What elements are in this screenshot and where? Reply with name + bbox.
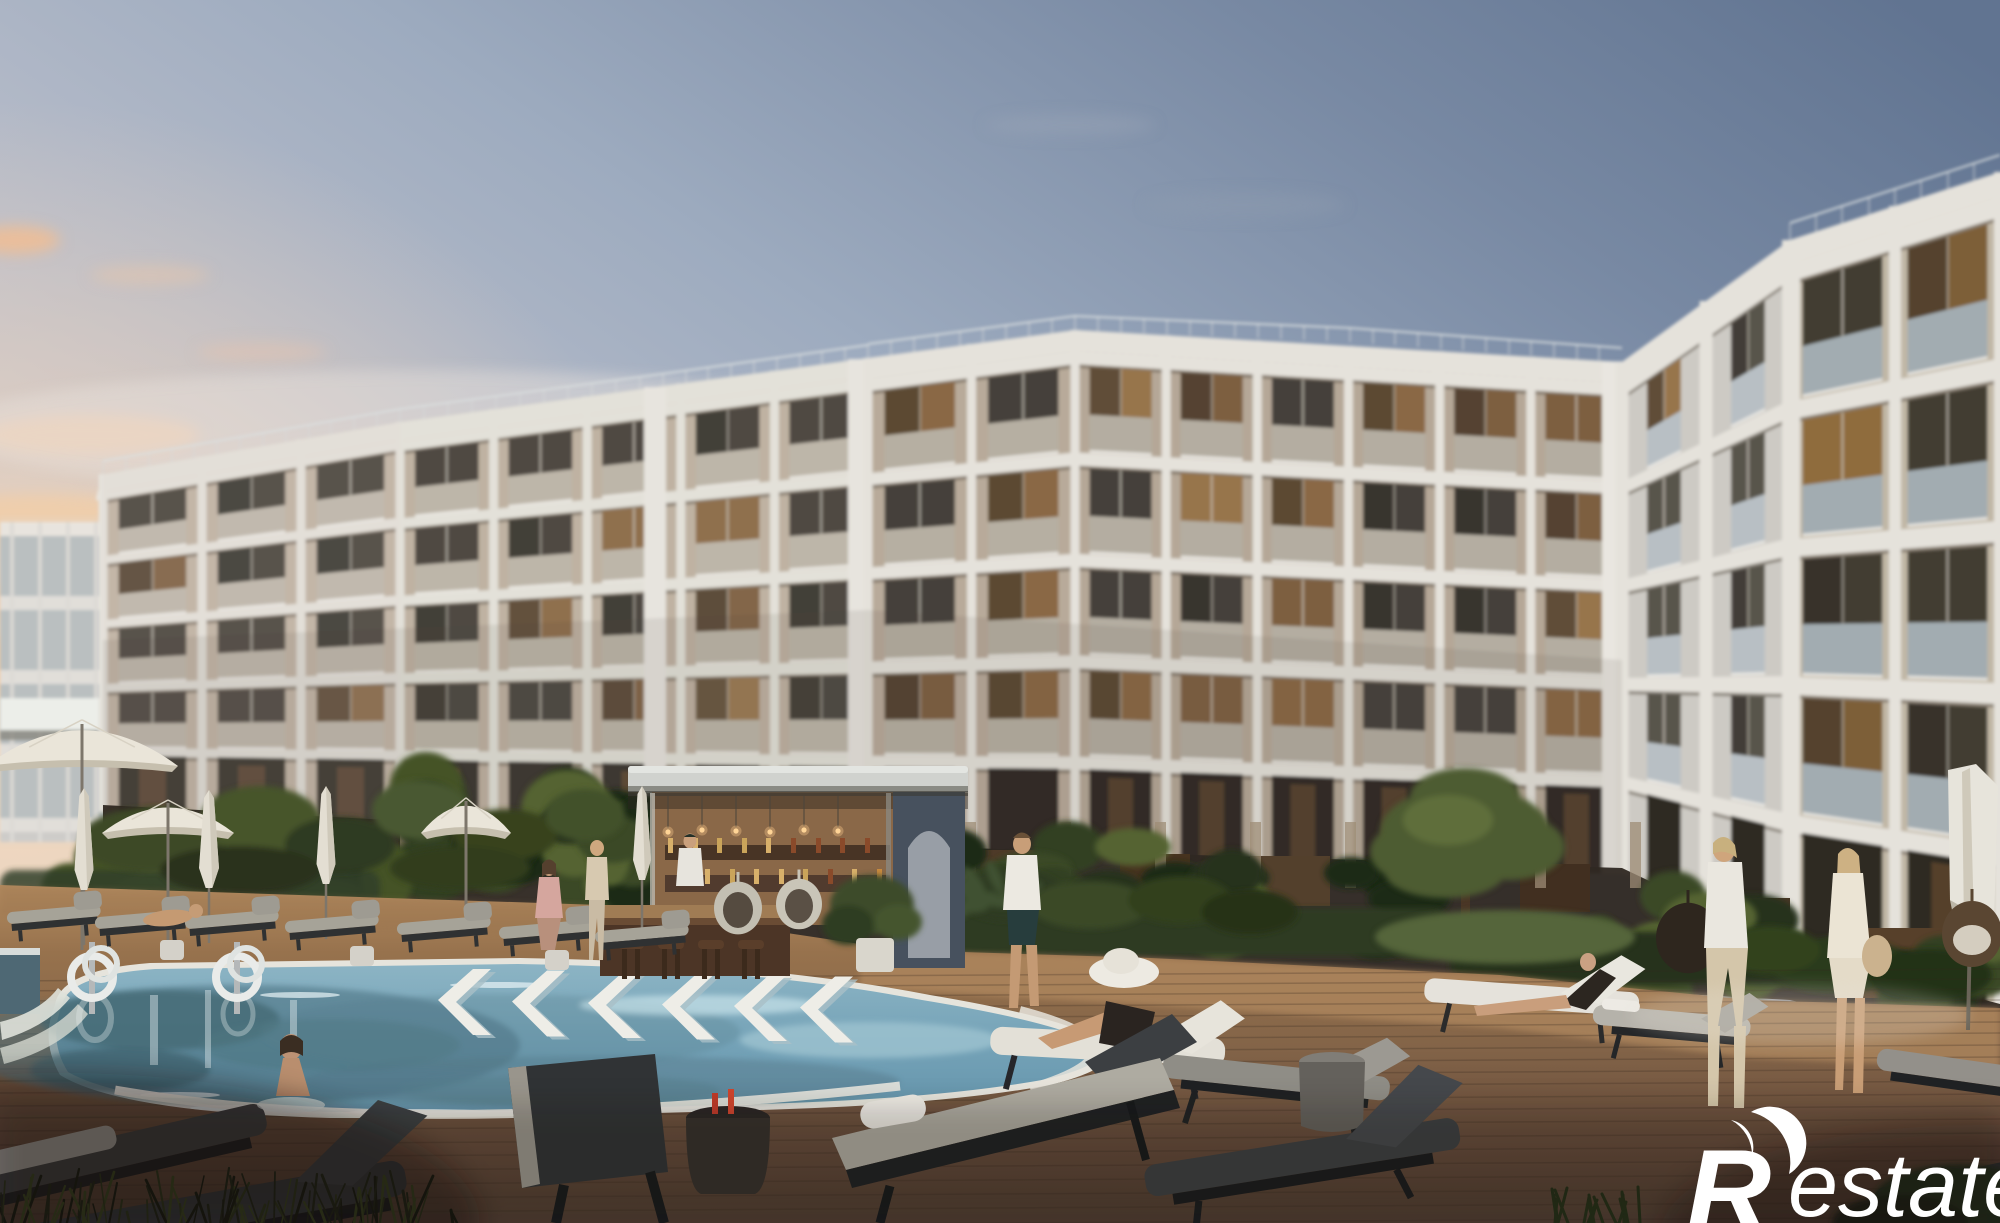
svg-text:R: R [1686,1126,1771,1223]
svg-text:estate: estate [1788,1136,2000,1223]
